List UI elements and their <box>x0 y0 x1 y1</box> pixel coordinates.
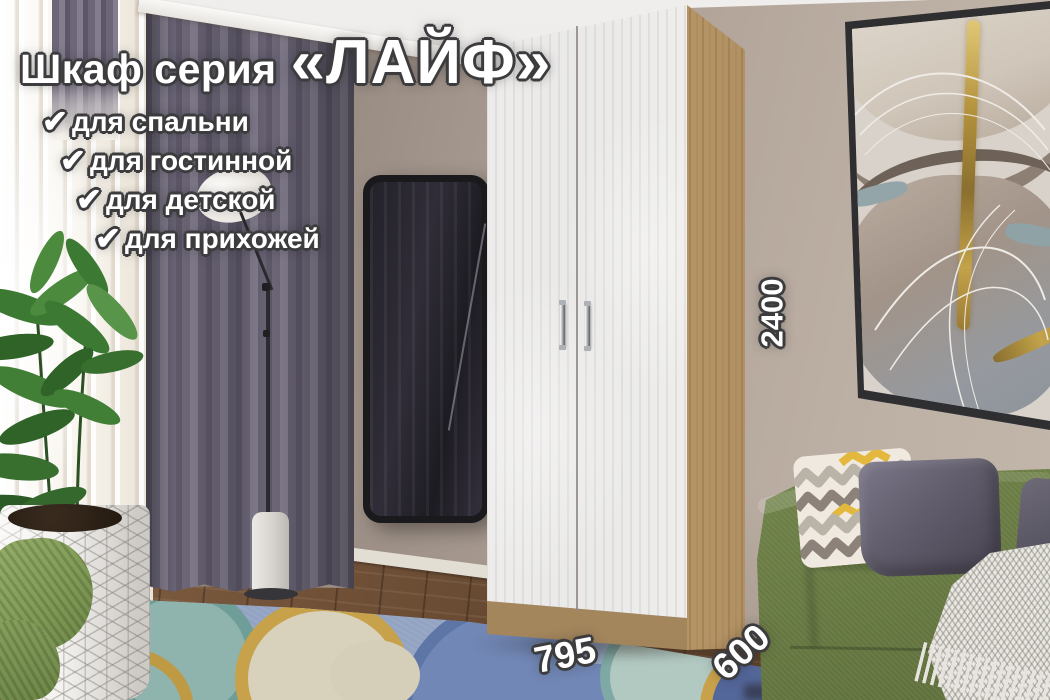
wardrobe-door-gap <box>576 26 578 611</box>
feature-label: для прихожей <box>125 225 320 253</box>
potted-plant <box>0 222 167 552</box>
handle-mount <box>584 346 591 351</box>
handle-mount <box>584 301 591 306</box>
feature-item: ✔ для прихожей <box>95 223 320 254</box>
wardrobe-handle-right <box>585 303 590 349</box>
gray-pillow <box>858 458 1002 578</box>
check-icon: ✔ <box>60 145 86 176</box>
painting-line-art <box>840 0 1050 430</box>
handle-mount <box>559 345 566 350</box>
floor-lamp-pole <box>266 288 270 520</box>
headline: Шкаф серия «ЛАЙФ» <box>20 32 551 90</box>
floor-lamp-base-plate <box>244 588 298 600</box>
headline-series-name: «ЛАЙФ» <box>291 32 552 94</box>
floor-mirror <box>363 175 489 523</box>
wardrobe-handle-left <box>560 302 565 348</box>
mirror-reflection-highlight <box>448 223 486 430</box>
rug-circle <box>330 640 420 700</box>
feature-item: ✔ для гостинной <box>60 145 292 176</box>
feature-label: для гостинной <box>90 147 292 175</box>
feature-label: для детской <box>106 186 276 214</box>
floor-lamp-joint <box>263 330 270 337</box>
handle-mount <box>559 300 566 305</box>
check-icon: ✔ <box>95 223 121 254</box>
feature-item: ✔ для спальни <box>42 106 249 137</box>
product-photo-scene: Шкаф серия «ЛАЙФ» ✔ для спальни ✔ для го… <box>0 0 1050 700</box>
feature-label: для спальни <box>72 108 249 136</box>
headline-prefix: Шкаф серия <box>20 49 277 90</box>
height-dimension-label: 2400 <box>757 279 788 348</box>
check-icon: ✔ <box>42 106 68 137</box>
check-icon: ✔ <box>76 184 102 215</box>
plant-soil <box>8 504 122 532</box>
floor-lamp-joint <box>262 283 270 291</box>
floor-lamp-base <box>252 512 289 596</box>
feature-item: ✔ для детской <box>76 184 276 215</box>
